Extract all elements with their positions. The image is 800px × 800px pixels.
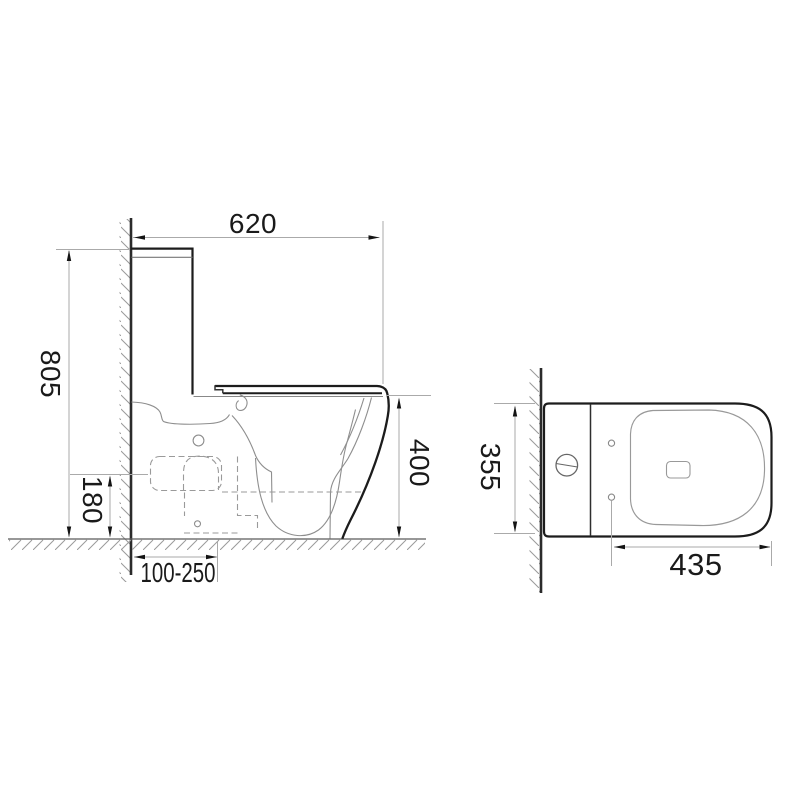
arrow-355-top: [513, 406, 517, 417]
flush-button-slot: [556, 464, 578, 468]
dimension-label-bowl-height: 400: [403, 439, 435, 487]
top-body-outline: [544, 404, 772, 537]
top-wall-hatch: [530, 369, 542, 592]
dimension-label-rough-in-range: 100-250: [140, 557, 215, 589]
dim-620-lines: [133, 221, 383, 384]
bowl-interior-lines: [132, 395, 372, 539]
top-drain-outline: [667, 462, 691, 479]
arrow-805-top: [67, 250, 71, 261]
arrow-355-bottom: [513, 522, 517, 533]
arrow-435-right: [760, 545, 771, 550]
arrow-400-bottom: [397, 527, 401, 538]
top-seat-opening: [631, 410, 765, 526]
side-wall-hatch: [120, 219, 132, 582]
arrow-400-top: [397, 398, 401, 409]
dimension-label-bowl-length: 435: [669, 547, 722, 583]
arrow-620-left: [134, 235, 145, 240]
arrow-180-top: [108, 476, 112, 487]
seat-bolt-hole-bottom: [608, 494, 614, 500]
arrow-805-bottom: [67, 527, 71, 538]
dimension-label-overall-width: 355: [474, 443, 506, 491]
technical-drawing-canvas: 620 805 180 400 100-250 355 435: [0, 0, 800, 800]
tank-outline: [131, 249, 193, 395]
dimension-label-overall-height: 805: [34, 350, 66, 398]
arrow-620-right: [369, 235, 380, 240]
dimension-label-outlet-height: 180: [76, 476, 108, 524]
dimension-linework: [56, 221, 772, 582]
dimension-arrowheads: [67, 235, 771, 559]
seat-bolt-hole-top: [608, 440, 614, 446]
arrow-180-bottom: [108, 527, 112, 538]
top-view-drawing: [530, 368, 772, 593]
drawing-linework: [0, 0, 800, 800]
arrow-435-left: [614, 545, 625, 550]
dimension-label-overall-depth: 620: [229, 208, 277, 240]
